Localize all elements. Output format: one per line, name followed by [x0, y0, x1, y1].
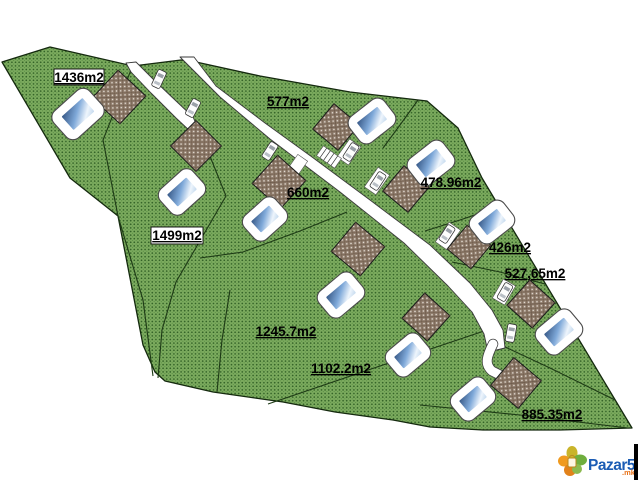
site-plan-svg: 1436m2 1499m2 577m2 660m2 478.96m2 426m2… — [0, 0, 640, 480]
parcel-area-label: 885.35m2 — [522, 407, 583, 422]
parcel-area-label: 1102.2m2 — [311, 361, 371, 376]
parcel-area-label: 426m2 — [489, 240, 531, 255]
parcel-area-label: 1499m2 — [152, 228, 202, 243]
parcel-area-label: 577m2 — [267, 94, 309, 109]
site-plan-image: 1436m2 1499m2 577m2 660m2 478.96m2 426m2… — [0, 0, 640, 480]
logo-edge-bar — [634, 444, 638, 480]
pazar5-logo: Pazar5 .mk — [556, 442, 640, 480]
parcel-area-label: 660m2 — [287, 185, 329, 200]
pazar5-logo-tld: .mk — [622, 468, 636, 477]
parcel-area-label: 478.96m2 — [421, 175, 482, 190]
parcel-area-label: 1245.7m2 — [256, 324, 317, 339]
parcel-area-label: 527,65m2 — [505, 266, 566, 281]
parcel-area-label: 1436m2 — [54, 70, 104, 85]
